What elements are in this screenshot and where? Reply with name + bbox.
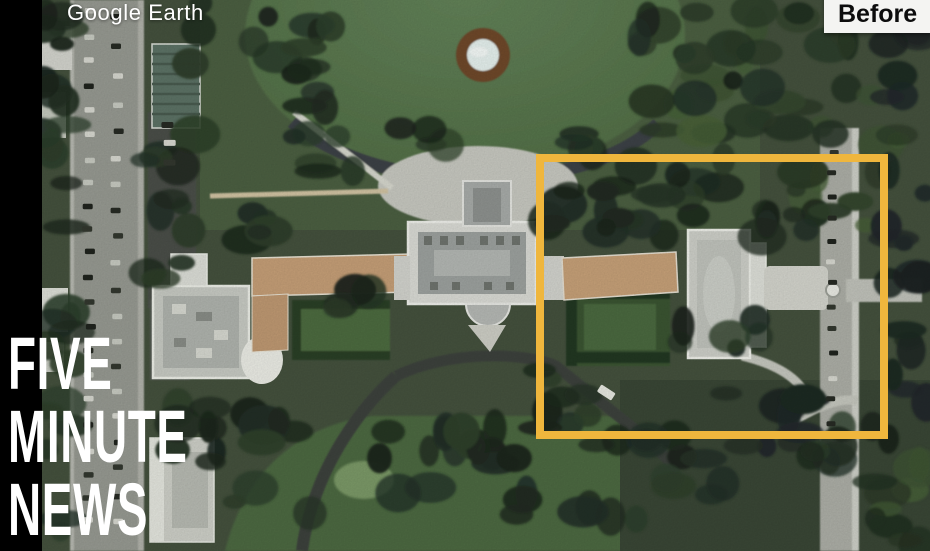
channel-title-line3: NEWS — [8, 473, 188, 546]
channel-title: FIVE MINUTE NEWS — [8, 327, 188, 546]
video-frame: Google Earth Before FIVE MINUTE NEWS — [0, 0, 930, 551]
google-earth-watermark: Google Earth — [67, 0, 204, 26]
channel-title-line1: FIVE — [8, 327, 188, 400]
channel-title-line2: MINUTE — [8, 400, 188, 473]
before-badge: Before — [824, 0, 930, 33]
